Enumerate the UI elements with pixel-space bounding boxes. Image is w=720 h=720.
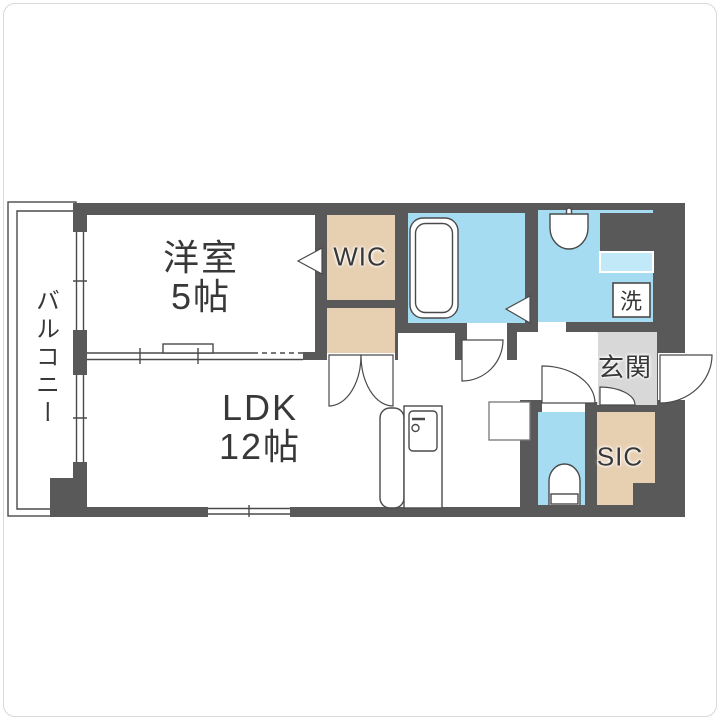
toilet-icon — [549, 464, 580, 505]
washroom-counter — [600, 252, 653, 272]
ldk-side-window — [73, 375, 87, 462]
bathtub-icon — [410, 218, 458, 318]
ldk-bottom-window — [208, 505, 290, 517]
front-door-arc — [660, 355, 712, 403]
washbasin-icon — [550, 208, 588, 249]
wic-label: WIC — [333, 242, 387, 273]
ldk-size: 12帖 — [219, 428, 301, 467]
entrance-label: 玄関 — [598, 348, 652, 385]
refrigerator-space — [489, 402, 530, 440]
western-room-size: 5帖 — [163, 278, 239, 317]
washer-space-label: 洗 — [620, 284, 642, 316]
balcony-label: バルコニー — [28, 288, 63, 428]
floor-plan: バルコニー 洋室 5帖 WIC LDK 12帖 洗 玄関 SIC — [0, 0, 720, 720]
western-room-name: 洋室 — [163, 239, 239, 278]
ldk-name: LDK — [219, 389, 301, 428]
western-room-label: 洋室 5帖 — [163, 239, 239, 317]
sic-label: SIC — [597, 442, 643, 473]
ldk-label: LDK 12帖 — [219, 389, 301, 467]
kitchen-unit — [380, 406, 442, 508]
closet-floor — [327, 308, 395, 353]
ldk-floor — [87, 360, 520, 507]
western-room-window — [73, 232, 87, 330]
